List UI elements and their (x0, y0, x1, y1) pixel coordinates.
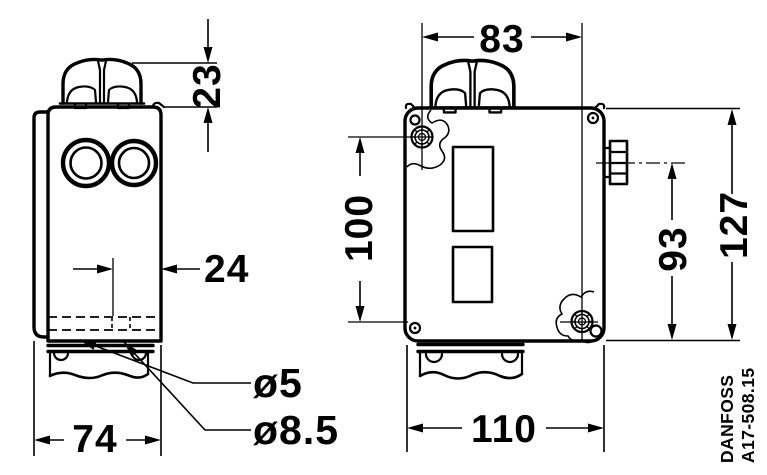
side-back-strip (34, 112, 48, 337)
title-block: DANFOSS A17-508.15 (717, 368, 758, 463)
cable-entry-circles (63, 140, 156, 186)
dim-text-side-width: 74 (72, 418, 117, 461)
dim-text-connector-height: 93 (652, 226, 695, 271)
hole-diameter-leaders: ø5 ø8.5 (80, 340, 339, 453)
hole-diameter-large-label: ø8.5 (253, 407, 339, 453)
dimension-knob-height: 23 (132, 19, 229, 152)
dimension-total-height: 127 (606, 109, 756, 341)
dimension-hole-spacing-vertical: 100 (338, 137, 598, 322)
front-mounting-bracket (418, 345, 523, 379)
front-view: 83 100 93 127 (338, 18, 756, 452)
brand-label: DANFOSS (717, 375, 737, 463)
mounting-hole-bottom-right (556, 291, 594, 342)
front-body-outline (405, 108, 604, 341)
front-window-upper (453, 147, 493, 231)
dim-text-hole-spacing-horizontal: 83 (479, 18, 524, 61)
drawing-canvas: 23 24 74 ø5 ø8.5 (0, 0, 767, 475)
dim-text-knob-height: 23 (186, 63, 229, 108)
technical-drawing: 23 24 74 ø5 ø8.5 (0, 0, 767, 475)
drawing-number-label: A17-508.15 (738, 368, 758, 463)
dim-text-total-height: 127 (713, 191, 756, 259)
adjustment-knob-front (428, 60, 517, 112)
dim-text-hole-spacing-vertical: 100 (338, 194, 381, 262)
dim-text-bottom-width: 110 (471, 408, 537, 451)
hole-diameter-small-label: ø5 (253, 360, 303, 406)
corner-screws (410, 113, 602, 337)
mounting-hole-top-left (407, 110, 449, 168)
dimension-connector-height: 93 (652, 163, 695, 340)
side-view: 23 24 74 ø5 ø8.5 (34, 19, 339, 461)
adjustment-knob-side (60, 59, 144, 108)
front-window-lower (453, 247, 492, 302)
dim-text-hole-offset: 24 (204, 248, 249, 291)
